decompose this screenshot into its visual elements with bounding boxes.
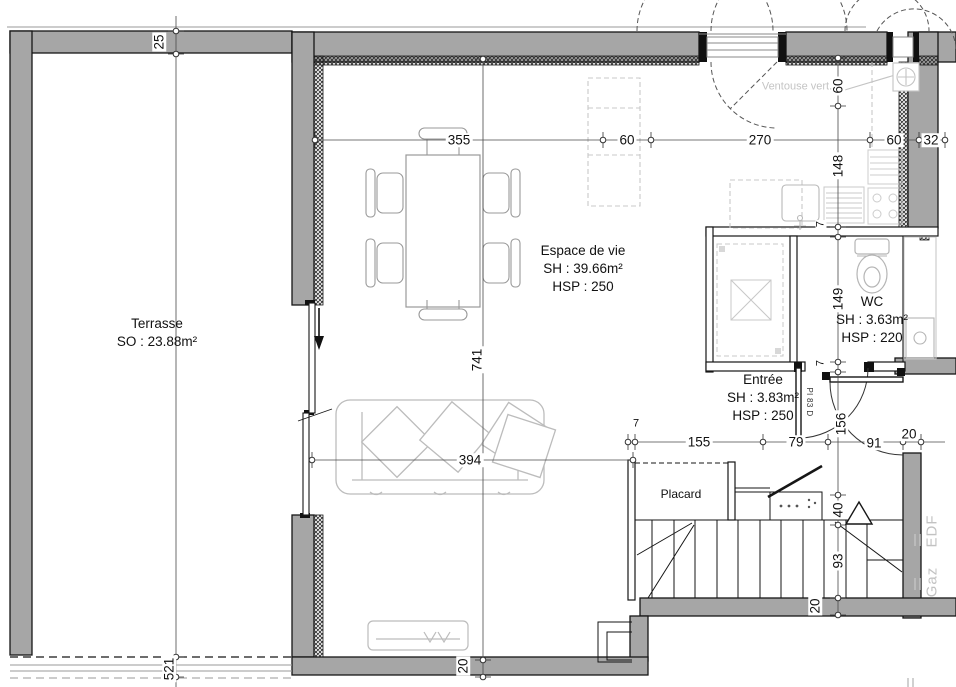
radiator (368, 621, 468, 650)
kitchen-appliances (868, 150, 902, 224)
sofa (336, 400, 556, 495)
dimension-label: 40 (831, 500, 845, 519)
room-label-placard: Placard (661, 485, 702, 503)
room-height: HSP : 250 (541, 278, 626, 296)
dimension-label: 32 (921, 133, 940, 147)
dimension-label: 148 (831, 153, 845, 180)
shower-area (717, 244, 783, 356)
staircase (635, 502, 903, 598)
entry-steps (598, 622, 632, 662)
room-name: Espace de vie (541, 242, 626, 260)
utility-label-edf: EDF (925, 513, 940, 550)
dimension-label: 20 (899, 427, 918, 441)
room-label-entree: Entrée SH : 3.83m² HSP : 250 (727, 371, 799, 425)
dimension-label: 79 (786, 435, 805, 449)
floor-plan: Terrasse SO : 23.88m² Espace de vie SH :… (0, 0, 956, 687)
room-name: Entrée (727, 371, 799, 389)
dimension-label: 521 (162, 656, 176, 683)
dimension-label: 355 (446, 133, 473, 147)
dimension-label: 20 (808, 596, 822, 615)
dimension-label: 741 (470, 347, 484, 374)
room-area: SH : 3.63m² (836, 311, 908, 329)
dimension-label: 7 (816, 220, 827, 228)
dimension-label: 7 (816, 359, 827, 367)
washbasin (904, 237, 936, 359)
room-name: Placard (661, 485, 702, 503)
entry-door-tag: Pl 83 D (805, 385, 813, 418)
terrace-edge-lines (10, 657, 292, 678)
dimension-label: 91 (864, 436, 883, 450)
room-name: Terrasse (117, 315, 197, 333)
boiler-flue (838, 63, 919, 92)
dimension-label: 155 (686, 435, 713, 449)
dimension-label: 93 (831, 551, 845, 570)
dimension-label: 149 (831, 286, 845, 313)
dining-table (406, 155, 480, 307)
placard-outline (635, 463, 770, 492)
dimension-label: 7 (632, 419, 640, 430)
room-area: SH : 39.66m² (541, 260, 626, 278)
sliding-bay-door (298, 300, 332, 518)
stairs-up-arrow (846, 502, 872, 524)
dimension-markers (173, 28, 948, 680)
dimension-label: 270 (747, 133, 774, 147)
kitchen-drainer (824, 187, 864, 223)
room-height: HSP : 220 (836, 329, 908, 347)
window-kitchen (887, 32, 919, 62)
room-name: WC (836, 293, 908, 311)
dimension-label: 60 (617, 133, 636, 147)
window-living (699, 32, 786, 62)
utility-label-gaz: Gaz (925, 565, 940, 600)
flue-note: Ventouse vert. (760, 82, 834, 93)
dimension-label: 60 (884, 133, 903, 147)
dimension-ticks (168, 31, 945, 677)
dimension-label: 394 (457, 453, 484, 467)
dimension-label: 156 (834, 411, 848, 438)
toilet (855, 239, 889, 293)
dimension-label: 20 (456, 656, 470, 675)
kitchen-sink (782, 185, 819, 230)
electrical-panel (768, 466, 822, 520)
room-area: SO : 23.88m² (117, 333, 197, 351)
room-label-terrasse: Terrasse SO : 23.88m² (117, 315, 197, 351)
room-area: SH : 3.83m² (727, 389, 799, 407)
room-label-wc: WC SH : 3.63m² HSP : 220 (836, 293, 908, 347)
room-height: HSP : 250 (727, 407, 799, 425)
dimension-label: 25 (152, 32, 166, 51)
room-label-living: Espace de vie SH : 39.66m² HSP : 250 (541, 242, 626, 296)
